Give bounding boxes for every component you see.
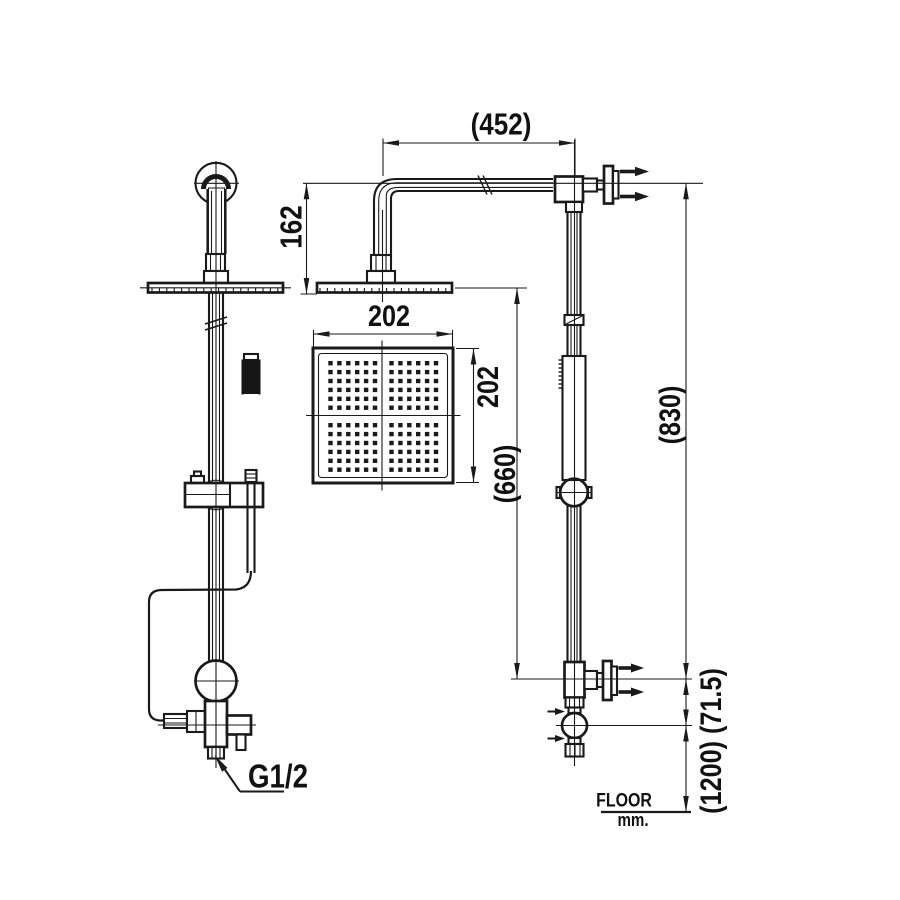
hose-nipple bbox=[164, 714, 187, 728]
dim-label-arm-drop: 162 bbox=[276, 205, 307, 248]
shower-hose bbox=[149, 571, 251, 721]
lower-wall-union bbox=[548, 661, 645, 757]
wall-anchor-arrow bbox=[619, 664, 645, 697]
drawing-linework bbox=[0, 0, 900, 900]
upper-wall-union bbox=[555, 166, 649, 212]
thread-label: G1/2 bbox=[248, 760, 308, 793]
dim-label-arm-reach: (452) bbox=[471, 109, 532, 140]
dim-label-lower: (1200) (71.5) bbox=[697, 668, 727, 814]
hand-shower-handle bbox=[244, 394, 259, 470]
shower-head-edge-side bbox=[317, 283, 452, 293]
hand-shower-cap bbox=[244, 354, 258, 360]
dim-label-head-width: 202 bbox=[368, 302, 410, 332]
floor-label: FLOOR bbox=[596, 792, 652, 811]
wall-anchor-arrow bbox=[620, 167, 649, 201]
dim-label-head-depth: 202 bbox=[474, 366, 504, 408]
floor-unit-label: mm. bbox=[617, 811, 648, 829]
hand-shower-head bbox=[242, 360, 260, 394]
dim-label-riser: (830) bbox=[656, 386, 686, 445]
technical-drawing-canvas: (452) 162 202 202 (660) (830) (1200) (71… bbox=[0, 0, 900, 900]
dim-label-head-to-tee: (660) bbox=[491, 445, 521, 504]
